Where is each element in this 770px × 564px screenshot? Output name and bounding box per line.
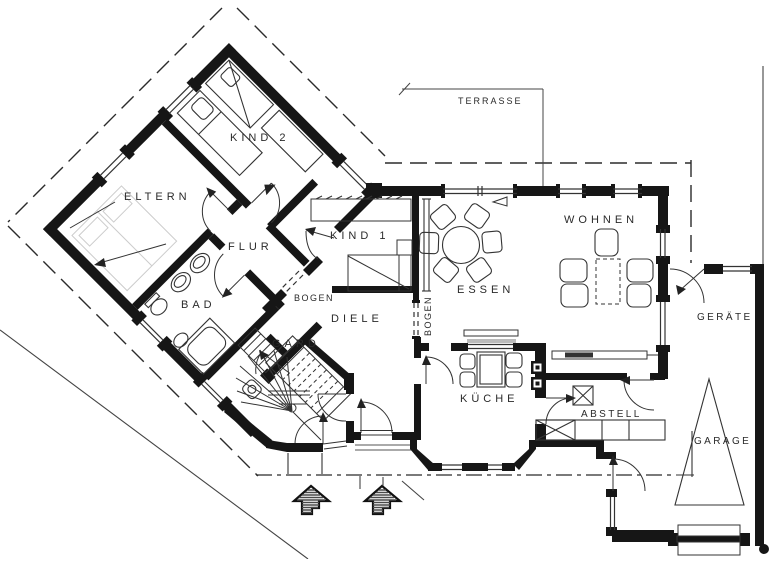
svg-text:GARD: GARD bbox=[272, 338, 320, 350]
svg-text:ELTERN: ELTERN bbox=[124, 191, 191, 203]
svg-text:ESSEN: ESSEN bbox=[457, 284, 514, 296]
svg-text:ABSTELL: ABSTELL bbox=[581, 409, 642, 420]
svg-text:GERÄTE: GERÄTE bbox=[697, 311, 753, 323]
svg-text:KIND 2: KIND 2 bbox=[230, 132, 289, 144]
svg-text:GARAGE: GARAGE bbox=[694, 436, 751, 447]
svg-text:FLUR: FLUR bbox=[228, 241, 273, 253]
svg-text:BAD: BAD bbox=[181, 299, 216, 311]
svg-text:WOHNEN: WOHNEN bbox=[564, 214, 638, 226]
svg-text:KÜCHE: KÜCHE bbox=[460, 393, 519, 405]
svg-text:KIND 1: KIND 1 bbox=[330, 230, 389, 242]
svg-text:BOGEN: BOGEN bbox=[423, 296, 433, 336]
svg-text:BOGEN: BOGEN bbox=[294, 293, 334, 303]
svg-text:DIELE: DIELE bbox=[331, 313, 383, 325]
svg-text:TERRASSE: TERRASSE bbox=[458, 96, 523, 106]
